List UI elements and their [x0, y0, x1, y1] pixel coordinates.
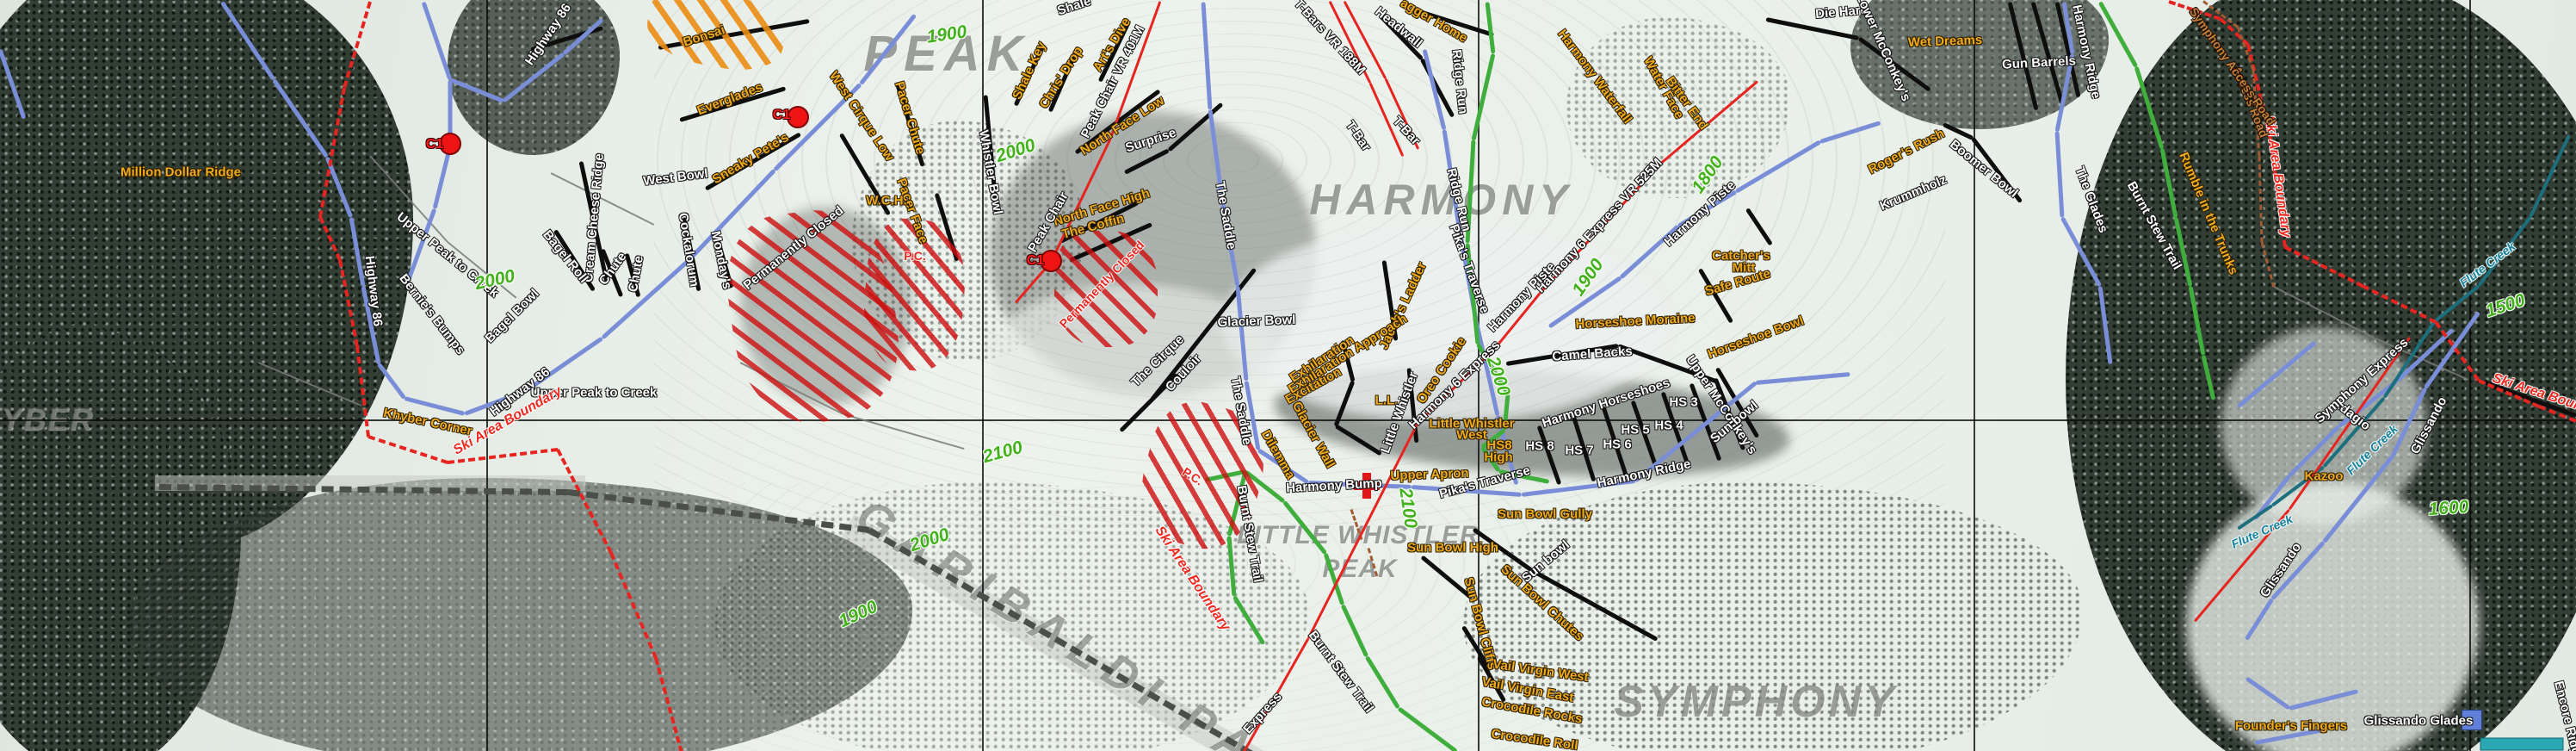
map-label: HS 3 [1669, 396, 1697, 409]
map-label: Boomer Bowl [1948, 138, 2021, 201]
map-label: W.C.H. [866, 195, 907, 208]
map-label: 1600 [2428, 498, 2469, 518]
map-label: HS 6 [1603, 438, 1631, 451]
map-label: Kazoo [2305, 470, 2344, 483]
map-label: HS 7 [1565, 444, 1593, 457]
map-label: HS 8 [1525, 440, 1554, 453]
map-label: Sun Bowl High [1407, 542, 1498, 555]
map-label: Wet Dreams [1908, 34, 1983, 49]
easy-route-line [433, 146, 453, 209]
region-name-harmony: HARMONY [1309, 178, 1573, 221]
map-label: HS 4 [1654, 419, 1683, 432]
map-label: Sun Bowl Gully [1498, 508, 1592, 521]
grid-line-vertical [1974, 0, 1975, 751]
map-label: Bernie's Bumps [397, 272, 467, 357]
map-label: HS 5 [1621, 424, 1649, 437]
map-label: Glacier Bowl [1217, 313, 1295, 329]
map-label: High [1484, 451, 1512, 464]
grid-line-vertical [982, 0, 984, 751]
map-label: Upper Apron [1390, 467, 1469, 482]
teal-bar-marker [2480, 738, 2564, 751]
map-label: C1 [426, 138, 443, 152]
region-name-symphony: SYMPHONY [1614, 680, 1898, 724]
map-label: West [1456, 429, 1487, 442]
map-label: C1 [1027, 254, 1044, 268]
map-label: Million Dollar Ridge [120, 166, 241, 179]
grid-line-vertical [2469, 0, 2471, 751]
grid-line-vertical [486, 0, 488, 751]
map-label: Founder's Fingers [2235, 720, 2347, 733]
map-label: Glissando Glades [2364, 715, 2474, 728]
map-label: C1 [773, 109, 790, 122]
easy-route-line [2055, 131, 2065, 217]
map-label: Gun Barrels [2002, 54, 2077, 71]
ski-area-boundary-line [368, 435, 448, 464]
ski-trail-map[interactable]: PEAK HARMONY SYMPHONY LITTLE WHISTLER PE… [0, 0, 2576, 751]
map-label: P.C. [904, 250, 925, 262]
easy-route-line [422, 2, 453, 81]
